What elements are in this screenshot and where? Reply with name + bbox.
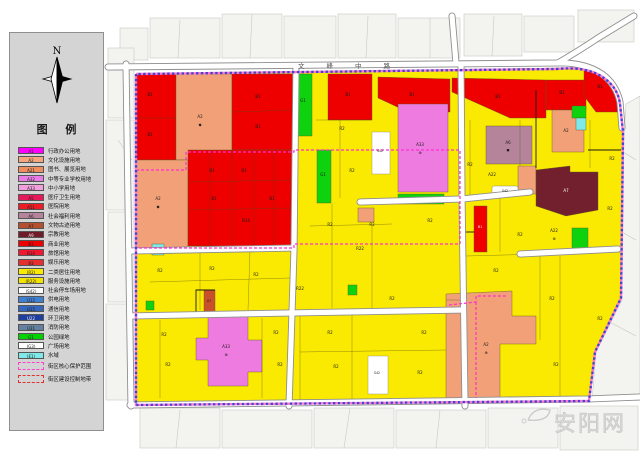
parcel-code: R2 [349, 168, 355, 173]
legend-swatch: A5 [18, 194, 44, 201]
legend-swatch: G1 [18, 333, 44, 340]
legend-label: 文化设施用地 [48, 156, 80, 164]
legend-item-A32: A32中等专业学校用地 [18, 174, 103, 183]
parcel-code: R2 [161, 332, 167, 337]
legend-swatch: A6 [18, 212, 44, 219]
legend-item-(G3): (G3)广场用地 [18, 341, 103, 350]
parcel-code: B1 [211, 196, 217, 201]
parcel-code: B14 [242, 218, 250, 223]
parcel-code: R2 [327, 330, 333, 335]
parcel-code: R22 [296, 286, 304, 291]
parcel-code: B1 [209, 168, 215, 173]
legend-label: 商业用地 [48, 240, 70, 248]
legend-swatch: A32 [18, 175, 44, 182]
parcel-code: B1 [409, 92, 415, 97]
legend-label: 消防用地 [48, 323, 70, 331]
parcel-code: B1 [478, 225, 482, 229]
legend-swatch: A21 [18, 166, 44, 173]
legend-item-(S42): (S42)社会停车场用地 [18, 285, 103, 294]
parcel-code: R2 [327, 222, 333, 227]
legend-item-A1: A1行政办公用地 [18, 146, 103, 155]
legend-item-(R22): (R22)服务设施用地 [18, 276, 103, 285]
parcel-code: R2 [609, 156, 615, 161]
legend-label: 通信用地 [48, 305, 70, 313]
parcel-code: ⊕ [224, 352, 227, 357]
parcel-code: A33 [416, 142, 424, 147]
parcel-code: R2 [421, 330, 427, 335]
parcel-code: R22 [356, 246, 364, 251]
north-label: N [52, 46, 61, 57]
legend-label: 医院用地 [48, 202, 70, 210]
legend-boundary-item: 街区核心保护范围 [18, 360, 103, 373]
parcel-code: R2 [253, 272, 259, 277]
parcel-code: B1 [241, 168, 247, 173]
parcel-code: R2 [427, 218, 433, 223]
north-compass: N [37, 43, 77, 107]
parcel-code: R2 [157, 268, 163, 273]
parcel-code: B1 [147, 92, 153, 97]
legend-label: 服务设施用地 [48, 277, 80, 285]
legend-label: 二类居住用地 [48, 268, 80, 276]
legend-item-U15: U15通信用地 [18, 304, 103, 313]
legend-swatch: U15 [18, 305, 44, 312]
street-name: 文峰中路 [298, 61, 412, 70]
legend-title: 图 例 [10, 121, 103, 137]
parcel-code: S42 [374, 371, 380, 375]
legend-item-A21: A21图书、展览用地 [18, 165, 103, 174]
legend-item-B1: B1商业用地 [18, 239, 103, 248]
legend-label: 社会福利用地 [48, 212, 80, 220]
planning-map-page: 文峰中路 B1B1A2◆B1B1A2◆B1B1B1B14B1G1G1B1B1B1… [0, 0, 640, 453]
legend-item-G1: G1公园绿地 [18, 332, 103, 341]
parcel-code: ⊕ [484, 350, 487, 355]
legend-label: 中小学用地 [48, 184, 75, 192]
parcel-code: R2 [165, 362, 171, 367]
parcel-code: A33 [222, 344, 230, 349]
legend-item-A5: A5医疗卫生用地 [18, 192, 103, 201]
watermark-text: 安阳网 [554, 412, 626, 437]
legend-item-A33: A33中小学用地 [18, 183, 103, 192]
parcel-code: R2 [607, 206, 613, 211]
legend-item-B14: B14旅馆用地 [18, 248, 103, 257]
parcel-code: B1 [345, 92, 351, 97]
legend-swatch: U12 [18, 296, 44, 303]
parcel-code: G1 [300, 98, 306, 103]
legend-label: 图书、展览用地 [48, 165, 86, 173]
parcel-code: R2 [369, 222, 375, 227]
legend-swatch: A9 [18, 231, 44, 238]
parcel-code: ⊕ [552, 236, 555, 241]
legend-item-A2: A2文化设施用地 [18, 155, 103, 164]
parcel-code: R2 [597, 316, 603, 321]
legend-item-A7: A7文物古迹用地 [18, 220, 103, 229]
legend-swatch: A33 [18, 184, 44, 191]
legend-swatch: (G3) [18, 342, 44, 349]
legend-swatch: A1 [18, 147, 44, 154]
parcel-code: A2 [563, 128, 569, 133]
parcel-code: ⊕ [418, 150, 421, 155]
legend-item-A9: A9宗教用地 [18, 230, 103, 239]
legend-swatch: U31 [18, 324, 44, 331]
parcel-code: R2 [467, 162, 473, 167]
legend-label: 街区建设控制地带 [48, 375, 91, 383]
legend-label: 街区核心保护范围 [48, 362, 91, 370]
parcel-code: A22 [488, 172, 496, 177]
legend-label: 公园绿地 [48, 333, 70, 341]
parcel-code: R2 [333, 364, 339, 369]
parcel-code: A2 [483, 342, 489, 347]
legend-label: 医疗卫生用地 [48, 193, 80, 201]
legend-label: 行政办公用地 [48, 147, 80, 155]
legend-item-A51: A51医院用地 [18, 202, 103, 211]
parcel-code: R2 [277, 362, 283, 367]
parcel-code: A7 [563, 188, 569, 193]
parcel-code: S42 [377, 149, 383, 153]
legend-dashed-swatch [18, 362, 44, 370]
legend-label: 社会停车场用地 [48, 286, 86, 294]
parcel-code: A22 [550, 228, 558, 233]
legend-boundary-item: 街区建设控制地带 [18, 373, 103, 386]
parcel-code: R2 [273, 330, 279, 335]
legend-label: 供电用地 [48, 295, 70, 303]
legend-item-U12: U12供电用地 [18, 295, 103, 304]
legend-swatch: (E1) [18, 352, 44, 359]
legend-swatch: B1 [18, 240, 44, 247]
legend-label: 宗教用地 [48, 230, 70, 238]
legend-swatch: U22 [18, 314, 44, 321]
parcel-code: A2 [155, 196, 161, 201]
legend-label: 文物古迹用地 [48, 221, 80, 229]
legend-item-(E1): (E1)水域 [18, 351, 103, 360]
legend-dashed-swatch [18, 375, 44, 383]
parcel-code: A6 [505, 140, 511, 145]
parcel-code: A7 [207, 299, 211, 303]
parcel-code: R2 [209, 266, 215, 271]
parcel-code: R2 [389, 296, 395, 301]
parcel-code: R2 [549, 296, 555, 301]
legend-label: 娱乐用地 [48, 258, 70, 266]
legend-swatch: A51 [18, 203, 44, 210]
legend-item-(R2): (R2)二类居住用地 [18, 267, 103, 276]
legend-swatch: (S42) [18, 287, 44, 294]
legend-label: 环卫用地 [48, 314, 70, 322]
legend-swatch: A2 [18, 156, 44, 163]
legend-item-U31: U31消防用地 [18, 323, 103, 332]
parcel-code: B1 [597, 84, 603, 89]
legend-label: 广场用地 [48, 342, 70, 350]
parcel-code: G1 [320, 172, 326, 177]
parcel-code: R2 [517, 232, 523, 237]
parcel-code: ■ [507, 148, 510, 152]
parcel-code: B1 [147, 132, 153, 137]
legend-swatch: A7 [18, 222, 44, 229]
parcel-code: B1 [559, 90, 565, 95]
legend-label: 旅馆用地 [48, 249, 70, 257]
parcel-code: R2 [493, 268, 499, 273]
parcel-code: B1 [255, 94, 261, 99]
legend-swatch: (R22) [18, 277, 44, 284]
parcel-code: S42 [502, 189, 508, 193]
parcel-code: R2 [417, 370, 423, 375]
parcel-code: A2 [197, 114, 203, 119]
parcel-code: B1 [495, 94, 501, 99]
legend-item-A6: A6社会福利用地 [18, 211, 103, 220]
legend-swatch: (R2) [18, 268, 44, 275]
legend-list: A1行政办公用地A2文化设施用地A21图书、展览用地A32中等专业学校用地A33… [10, 146, 103, 386]
legend-label: 水域 [48, 351, 59, 359]
parcel-code: R2 [339, 126, 345, 131]
legend-swatch: B14 [18, 249, 44, 256]
parcel-code: B1 [255, 124, 261, 129]
parcel-code: B1 [269, 196, 275, 201]
legend-swatch: B3 [18, 259, 44, 266]
parcel-code: R2 [553, 362, 559, 367]
legend-item-B3: B3娱乐用地 [18, 258, 103, 267]
legend-panel: N 图 例 A1行政办公用地A2文化设施用地A21图书、展览用地A32中等专业学… [9, 32, 104, 431]
legend-item-U22: U22环卫用地 [18, 313, 103, 322]
legend-label: 中等专业学校用地 [48, 175, 91, 183]
